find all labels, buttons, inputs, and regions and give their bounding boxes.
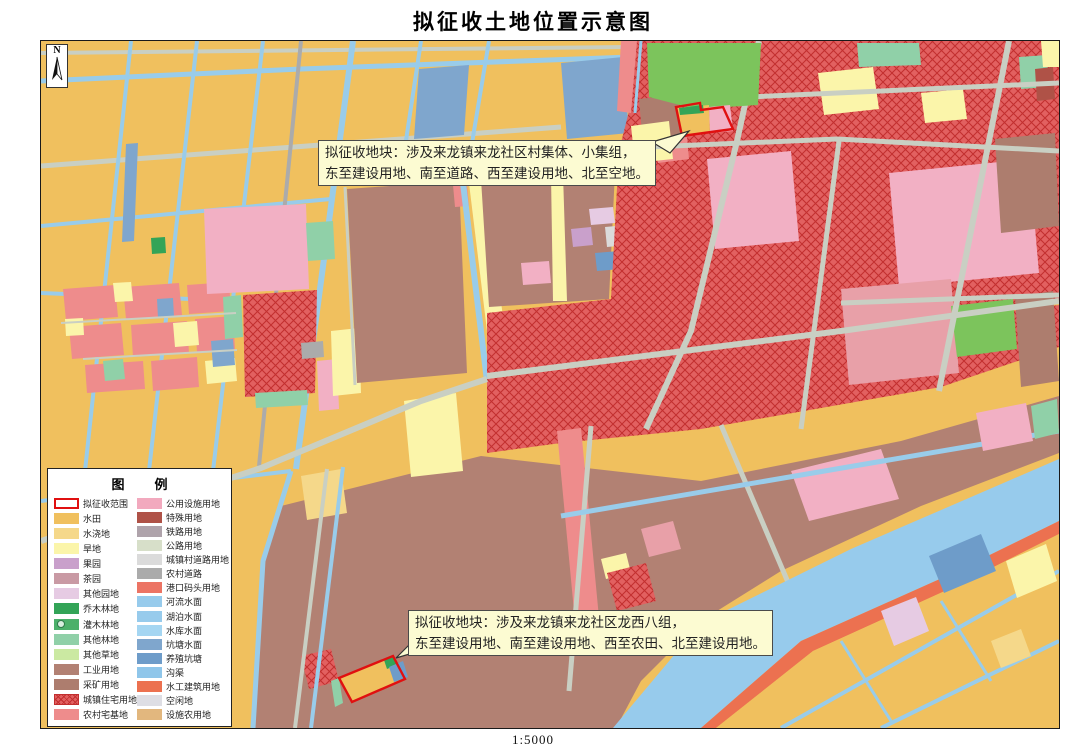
legend-label: 采矿用地 (83, 678, 119, 691)
legend-label: 养殖坑塘 (166, 652, 202, 665)
legend-swatch (137, 667, 162, 678)
forest-dot (151, 237, 166, 254)
legend-label: 水库水面 (166, 624, 202, 637)
legend-label: 乔木林地 (83, 602, 119, 615)
legend-swatch (54, 498, 79, 509)
legend-label: 果园 (83, 557, 101, 570)
annotation-box-1: 拟征收地块：涉及来龙镇来龙社区村集体、小集组， 东至建设用地、南至道路、西至建设… (318, 140, 656, 186)
legend-item: 坑塘水面 (137, 638, 228, 651)
legend-label: 河流水面 (166, 595, 202, 608)
legend-swatch (137, 653, 162, 664)
legend-label: 城镇住宅用地 (83, 693, 137, 706)
legend-item: 农村宅基地 (54, 708, 137, 721)
legend-label: 茶园 (83, 572, 101, 585)
legend-label: 农村道路 (166, 567, 202, 580)
legend-swatch (137, 554, 162, 565)
legend-title-right: 例 (155, 474, 168, 493)
legend-label: 其他草地 (83, 648, 119, 661)
pond-parcel (414, 65, 469, 139)
legend-label: 灌木林地 (83, 618, 119, 631)
legend-item: 茶园 (54, 572, 137, 585)
legend-swatch (137, 625, 162, 636)
legend-item: 水浇地 (54, 527, 137, 540)
legend-label: 水浇地 (83, 527, 110, 540)
legend-label: 拟征收范围 (83, 497, 128, 510)
legend-swatch (54, 694, 79, 705)
legend-item: 养殖坑塘 (137, 652, 228, 665)
forest-strip (306, 221, 335, 261)
legend-swatch (137, 568, 162, 579)
legend-item: 城镇住宅用地 (54, 693, 137, 706)
north-label: N (47, 45, 67, 56)
annotation-2-line-2: 东至建设用地、南至建设用地、西至农田、北至建设用地。 (415, 633, 766, 654)
forest-patch-north (647, 43, 761, 109)
legend-columns: 拟征收范围水田水浇地旱地果园茶园其他园地乔木林地灌木林地其他林地其他草地工业用地… (48, 493, 231, 726)
legend-swatch (137, 611, 162, 622)
legend-label: 水工建筑用地 (166, 680, 220, 693)
legend-label: 工业用地 (83, 663, 119, 676)
legend-item: 乔木林地 (54, 602, 137, 615)
legend-column-1: 拟征收范围水田水浇地旱地果园茶园其他园地乔木林地灌木林地其他林地其他草地工业用地… (54, 496, 137, 722)
compass-icon (50, 56, 64, 82)
legend-item: 果园 (54, 557, 137, 570)
legend-swatch (54, 649, 79, 660)
legend-item: 铁路用地 (137, 525, 228, 538)
legend-title-left: 图 (111, 474, 124, 493)
legend-item: 河流水面 (137, 595, 228, 608)
legend-swatch (137, 526, 162, 537)
legend-swatch (54, 679, 79, 690)
legend-item: 设施农用地 (137, 708, 228, 721)
legend-item: 拟征收范围 (54, 497, 137, 510)
legend-label: 铁路用地 (166, 525, 202, 538)
legend-item: 水田 (54, 512, 137, 525)
legend: 图 例 拟征收范围水田水浇地旱地果园茶园其他园地乔木林地灌木林地其他林地其他草地… (47, 468, 232, 727)
legend-label: 港口码头用地 (166, 581, 220, 594)
scale-label: 1:5000 (0, 732, 1066, 748)
legend-label: 设施农用地 (166, 708, 211, 721)
legend-item: 灌木林地 (54, 618, 137, 631)
forest-strip (255, 390, 308, 408)
legend-swatch (137, 639, 162, 650)
legend-swatch (54, 634, 79, 645)
legend-item: 采矿用地 (54, 678, 137, 691)
legend-swatch (137, 709, 162, 720)
legend-swatch (137, 498, 162, 509)
legend-label: 其他园地 (83, 587, 119, 600)
legend-item: 工业用地 (54, 663, 137, 676)
legend-item: 其他林地 (54, 633, 137, 646)
legend-swatch (54, 619, 79, 630)
legend-swatch (54, 513, 79, 524)
legend-label: 城镇村道路用地 (166, 553, 229, 566)
legend-column-2: 公用设施用地特殊用地铁路用地公路用地城镇村道路用地农村道路港口码头用地河流水面湖… (137, 496, 228, 722)
legend-swatch (137, 695, 162, 706)
legend-swatch (137, 681, 162, 692)
legend-label: 坑塘水面 (166, 638, 202, 651)
legend-item: 其他园地 (54, 587, 137, 600)
legend-label: 沟渠 (166, 666, 184, 679)
legend-item: 公用设施用地 (137, 497, 228, 510)
legend-item: 湖泊水面 (137, 610, 228, 623)
legend-swatch (54, 558, 79, 569)
legend-swatch (54, 709, 79, 720)
legend-label: 水田 (83, 512, 101, 525)
public-facility-block (204, 204, 309, 294)
legend-swatch (54, 664, 79, 675)
annotation-1-line-1: 拟征收地块：涉及来龙镇来龙社区村集体、小集组， (325, 142, 649, 163)
legend-swatch (54, 528, 79, 539)
legend-swatch (137, 540, 162, 551)
legend-item: 空闲地 (137, 694, 228, 707)
legend-swatch (137, 582, 162, 593)
legend-title: 图 例 (48, 469, 231, 493)
legend-label: 其他林地 (83, 633, 119, 646)
legend-item: 水库水面 (137, 624, 228, 637)
legend-label: 湖泊水面 (166, 610, 202, 623)
legend-item: 沟渠 (137, 666, 228, 679)
annotation-box-2: 拟征收地块：涉及来龙镇来龙社区龙西八组， 东至建设用地、南至建设用地、西至农田、… (408, 610, 773, 656)
legend-item: 公路用地 (137, 539, 228, 552)
shrub-circle-glyph (57, 620, 65, 628)
legend-swatch (137, 596, 162, 607)
annotation-2-line-1: 拟征收地块：涉及来龙镇来龙社区龙西八组， (415, 612, 766, 633)
legend-label: 空闲地 (166, 694, 193, 707)
legend-item: 特殊用地 (137, 511, 228, 524)
legend-swatch (54, 588, 79, 599)
legend-item: 水工建筑用地 (137, 680, 228, 693)
legend-item: 农村道路 (137, 567, 228, 580)
legend-label: 公路用地 (166, 539, 202, 552)
legend-swatch (137, 512, 162, 523)
page: 拟征收土地位置示意图 (0, 0, 1066, 754)
annotation-1-line-2: 东至建设用地、南至道路、西至建设用地、北至空地。 (325, 163, 649, 184)
legend-item: 港口码头用地 (137, 581, 228, 594)
legend-item: 其他草地 (54, 648, 137, 661)
legend-label: 特殊用地 (166, 511, 202, 524)
page-title: 拟征收土地位置示意图 (0, 6, 1066, 36)
legend-item: 旱地 (54, 542, 137, 555)
legend-label: 公用设施用地 (166, 497, 220, 510)
legend-swatch (54, 603, 79, 614)
legend-label: 农村宅基地 (83, 708, 128, 721)
legend-item: 城镇村道路用地 (137, 553, 228, 566)
north-arrow: N (46, 44, 68, 88)
legend-label: 旱地 (83, 542, 101, 555)
legend-swatch (54, 543, 79, 554)
road-patch (301, 341, 324, 359)
legend-swatch (54, 573, 79, 584)
